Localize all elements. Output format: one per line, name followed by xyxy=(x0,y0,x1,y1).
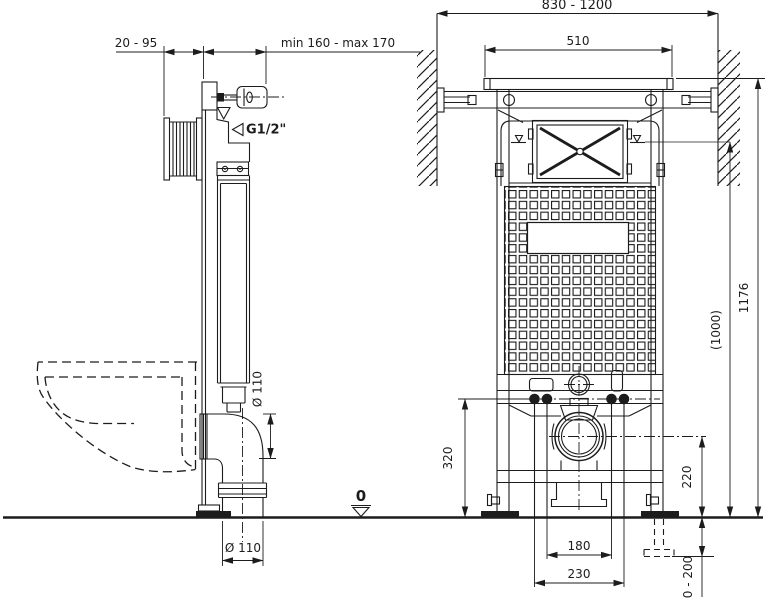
bolt-spacing-dimensions: 180 230 xyxy=(535,539,625,583)
left-level-triangle-icon xyxy=(516,136,523,143)
flush-plate-sleeve xyxy=(164,118,202,180)
drain-elbow xyxy=(200,408,267,542)
right-foot xyxy=(641,511,679,518)
perforated-plate xyxy=(497,187,663,375)
leg-adjustment-dimension: 0 - 200 xyxy=(681,518,702,599)
frame-height-label: 1176 xyxy=(737,283,751,314)
inspection-window xyxy=(529,121,632,183)
fixing-height-dimension: 320 xyxy=(441,399,660,517)
dim-installation-depth-label: min 160 - max 170 xyxy=(281,36,395,50)
right-level-triangle-icon xyxy=(634,136,641,143)
drawing-canvas: 20 - 95 min 160 - max 170 xyxy=(0,0,778,600)
outlet-height-label: 220 xyxy=(680,466,694,489)
elbow-diameter-label: Ø 110 xyxy=(251,371,265,407)
perforation-grid xyxy=(505,187,656,374)
water-level-label: (1000) xyxy=(709,310,723,350)
side-clips xyxy=(496,164,665,177)
water-supply-markers: G1/2" xyxy=(218,108,287,138)
dim-wall-offset-label: 20 - 95 xyxy=(115,36,158,50)
frame-foot-profile xyxy=(196,511,231,518)
bolt-spacing-narrow-label: 180 xyxy=(568,539,591,553)
wc-bowl-outline xyxy=(37,362,197,472)
left-wall-plate xyxy=(437,88,444,112)
supply-triangle-icon xyxy=(218,108,231,120)
frame-width-label: 510 xyxy=(567,34,590,48)
flush-plate-cutout xyxy=(528,223,629,254)
top-rail-and-anchors xyxy=(437,79,718,123)
window-center-hole xyxy=(577,148,583,154)
frame-column-profile xyxy=(196,82,231,518)
outlet-height-dimension: 220 xyxy=(680,437,702,517)
floor-zero-marker: 0 xyxy=(351,487,371,517)
fixing-height-label: 320 xyxy=(441,447,455,470)
datum-triangle-icon xyxy=(353,508,369,517)
leg-extension-dashed xyxy=(644,519,714,557)
front-top-dimensions: 830 - 1200 510 xyxy=(437,0,718,77)
leg-adjustment-label: 0 - 200 xyxy=(681,556,695,599)
water-level-marks xyxy=(511,136,730,143)
technical-drawing: 20 - 95 min 160 - max 170 xyxy=(0,0,778,600)
wall-span-label: 830 - 1200 xyxy=(542,0,613,13)
cistern-profile xyxy=(217,110,250,412)
floor-level-label: 0 xyxy=(356,487,366,505)
actuation-rod-and-valve xyxy=(211,87,287,109)
water-level-dimension: (1000) xyxy=(709,142,730,517)
left-foot xyxy=(481,511,519,518)
supply-thread-label: G1/2" xyxy=(246,123,286,138)
elbow-diameter-dimension: Ø 110 xyxy=(251,371,277,459)
right-wall-hatch xyxy=(718,50,740,186)
drain-outlet-socket xyxy=(497,366,706,512)
front-view: 830 - 1200 510 xyxy=(417,0,765,598)
left-wall-hatch xyxy=(417,50,437,186)
pipe-diameter-label: Ø 110 xyxy=(225,541,261,555)
right-wall-plate xyxy=(711,88,718,112)
side-view: 20 - 95 min 160 - max 170 xyxy=(37,36,420,566)
bolt-spacing-wide-label: 230 xyxy=(568,567,591,581)
thread-triangle-icon xyxy=(233,124,244,136)
